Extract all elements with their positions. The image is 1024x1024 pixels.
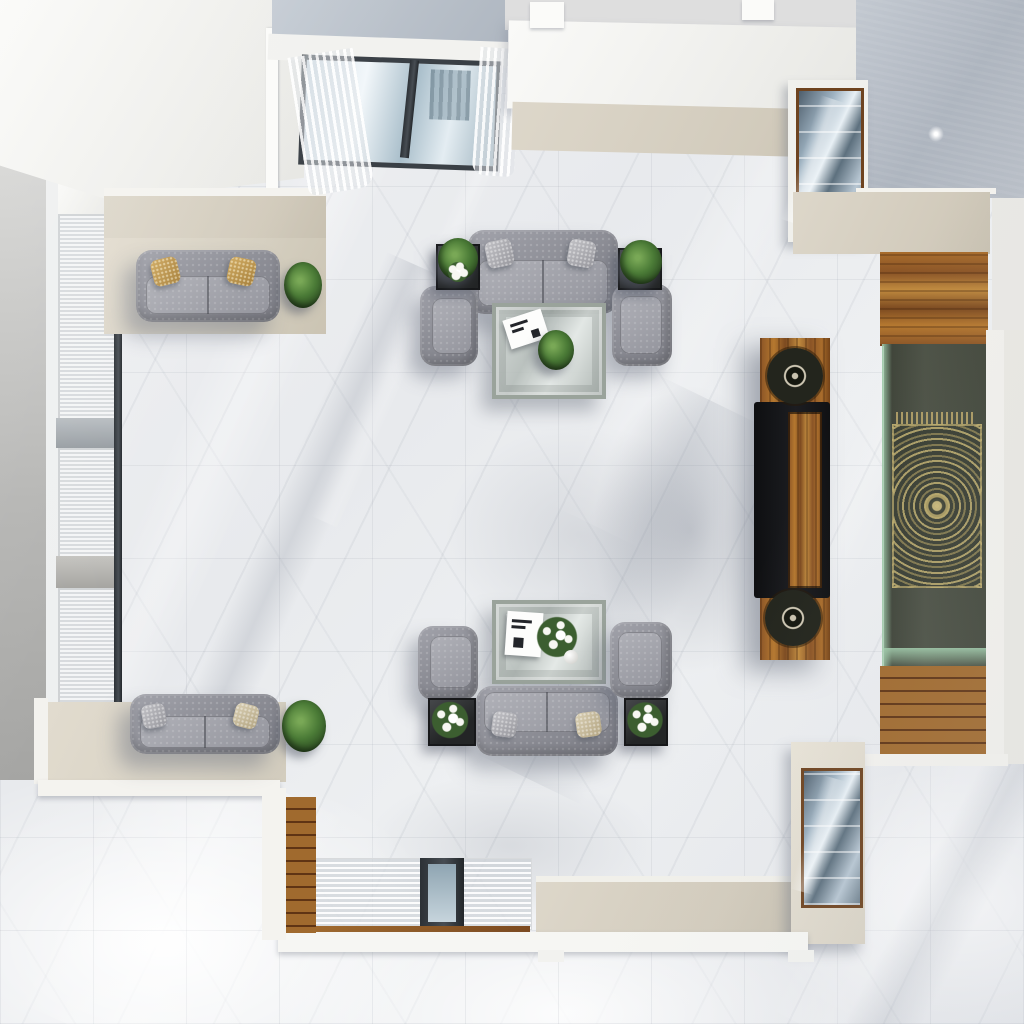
speaker-bottom xyxy=(765,590,821,646)
speaker-top xyxy=(767,348,823,404)
city-reflection xyxy=(429,69,471,120)
side-table-plant xyxy=(620,240,662,284)
living-room-render xyxy=(0,0,1024,1024)
white-flowers xyxy=(446,262,470,282)
window-sill xyxy=(56,556,120,588)
wood-slats-lower xyxy=(880,666,988,758)
bench-bottom xyxy=(536,882,798,934)
platform-front-edge xyxy=(38,780,280,796)
potted-plant xyxy=(284,262,322,308)
mandala-art xyxy=(892,424,982,588)
window-sofa-lower-left xyxy=(130,694,280,754)
potted-plant xyxy=(282,700,326,752)
wall-stub xyxy=(788,950,814,962)
white-flower-bouquet xyxy=(626,700,664,740)
platform-left-edge xyxy=(34,698,48,784)
wall-sparkle xyxy=(928,126,944,142)
right-soffit xyxy=(793,192,990,254)
window-sofa-upper-left xyxy=(136,250,280,322)
left-exterior-wall xyxy=(0,162,46,780)
niche-accent-light-bottom xyxy=(884,648,986,668)
decor-sphere xyxy=(564,650,578,664)
bottom-wall xyxy=(278,932,808,952)
white-flower-bouquet xyxy=(430,700,470,740)
wall-cap xyxy=(742,0,774,20)
upper-armchair-left xyxy=(420,286,478,366)
wall-stub xyxy=(538,950,564,962)
tv-cabinet-door xyxy=(788,412,822,588)
wood-panel-upper xyxy=(880,252,988,346)
top-right-exterior-wall xyxy=(856,0,1024,198)
mandala-fringe xyxy=(896,412,974,424)
lower-sofa xyxy=(476,686,618,756)
wall-cap xyxy=(530,2,564,28)
lower-armchair-right xyxy=(610,622,672,698)
window-blinds-middle xyxy=(58,448,120,560)
upper-sofa xyxy=(468,230,618,314)
niche-frame-white xyxy=(986,330,1006,764)
right-light-wall xyxy=(1004,330,1024,764)
bottom-window-glass xyxy=(428,864,456,922)
upper-armchair-right xyxy=(612,284,672,366)
right-wall-column xyxy=(992,198,1024,334)
window-sill xyxy=(56,418,120,448)
lower-armchair-left xyxy=(418,626,478,700)
upper-left-soffit-band xyxy=(104,196,326,240)
niche-base-trim xyxy=(858,754,1008,766)
platform-wood-side xyxy=(286,797,316,933)
platform-corner-edge xyxy=(262,788,286,940)
niche-accent-light-left xyxy=(882,344,892,668)
upper-left-wall-plane xyxy=(0,0,304,202)
coffee-table-plant xyxy=(538,330,574,370)
